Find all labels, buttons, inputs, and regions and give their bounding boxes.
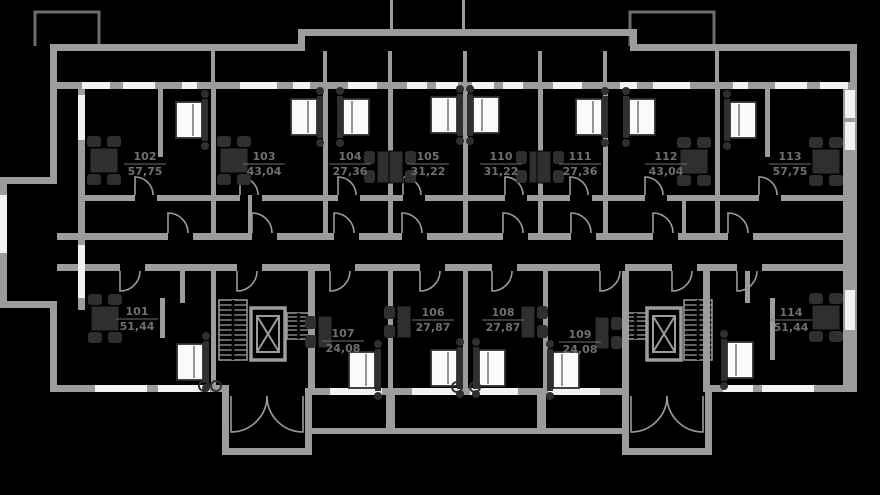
apartment-area: 31,22 [484, 165, 519, 178]
apartment-label[interactable]: 111 27,36 [559, 150, 601, 178]
apartment-label[interactable]: 101 51,44 [116, 305, 158, 333]
entrance-door-right [667, 396, 703, 432]
apartment-number: 114 [780, 306, 803, 319]
apartment-number: 107 [332, 327, 355, 340]
apartment-area: 31,22 [411, 165, 446, 178]
apartment-area: 51,44 [774, 321, 809, 334]
apartment-number: 101 [126, 305, 149, 318]
bed-icon [576, 87, 609, 147]
entrance-door-left [231, 396, 267, 432]
apartment-number: 102 [134, 150, 157, 163]
stair-core-right [624, 300, 712, 360]
bed-icon [336, 87, 369, 147]
dining-table-icon [809, 293, 843, 342]
apartment-area: 27,36 [333, 165, 368, 178]
apartment-label[interactable]: 108 27,87 [482, 306, 524, 334]
apartment-number: 104 [339, 150, 362, 163]
elevator-icon [251, 308, 285, 360]
bed-icon [720, 330, 753, 390]
apartment-label[interactable]: 103 43,04 [243, 150, 285, 178]
bed-icon [176, 90, 209, 150]
apartment-area: 57,75 [773, 165, 808, 178]
apartment-number: 113 [779, 150, 802, 163]
balcony-parapet-top-left [35, 12, 99, 46]
staircase-icon [624, 313, 647, 339]
bed-icon [723, 90, 756, 150]
apartment-number: 111 [569, 150, 592, 163]
apartment-label[interactable]: 113 57,75 [769, 150, 811, 178]
entrance-door-left [267, 396, 303, 432]
apartment-label[interactable]: 110 31,22 [480, 150, 522, 178]
staircase-icon [219, 300, 247, 360]
balcony-outlines [35, 0, 714, 46]
apartment-area: 51,44 [120, 320, 155, 333]
apartment-area: 27,87 [416, 321, 451, 334]
dining-table-icon [809, 137, 843, 186]
dining-table-icon [87, 136, 121, 185]
apartment-number: 105 [417, 150, 440, 163]
entrance-door-right [631, 396, 667, 432]
balcony-divider [390, 0, 393, 29]
apartment-number: 106 [422, 306, 445, 319]
apartment-area: 43,04 [649, 165, 684, 178]
apartment-area: 57,75 [128, 165, 163, 178]
apartment-label[interactable]: 106 27,87 [412, 306, 454, 334]
apartment-area: 43,04 [247, 165, 282, 178]
bed-icon [622, 87, 655, 147]
floor-plan: 101 51,44 102 57,75 103 43,04 104 27,36 … [0, 0, 880, 495]
balcony-parapet-top-right [630, 12, 714, 46]
apartment-number: 112 [655, 150, 678, 163]
dining-table-icon [677, 137, 711, 186]
bed-icon [291, 87, 324, 147]
apartment-number: 109 [569, 328, 592, 341]
bed-icon [466, 85, 499, 145]
stair-core-left [219, 300, 310, 360]
apartment-area: 24,08 [326, 342, 361, 355]
dining-table-icon [595, 317, 622, 349]
apartment-label[interactable]: 114 51,44 [770, 306, 812, 334]
apartment-area: 27,87 [486, 321, 521, 334]
apartment-area: 27,36 [563, 165, 598, 178]
apartment-number: 108 [492, 306, 515, 319]
floor-plan-canvas: 101 51,44 102 57,75 103 43,04 104 27,36 … [0, 0, 880, 495]
balcony-divider [462, 0, 465, 29]
dining-table-icon [537, 151, 564, 183]
apartment-number: 103 [253, 150, 276, 163]
bed-icon [177, 332, 210, 392]
apartment-area: 24,08 [563, 343, 598, 356]
elevator-icon [647, 308, 681, 360]
bed-icon [431, 85, 464, 145]
dining-table-icon [364, 151, 391, 183]
apartment-number: 110 [490, 150, 513, 163]
